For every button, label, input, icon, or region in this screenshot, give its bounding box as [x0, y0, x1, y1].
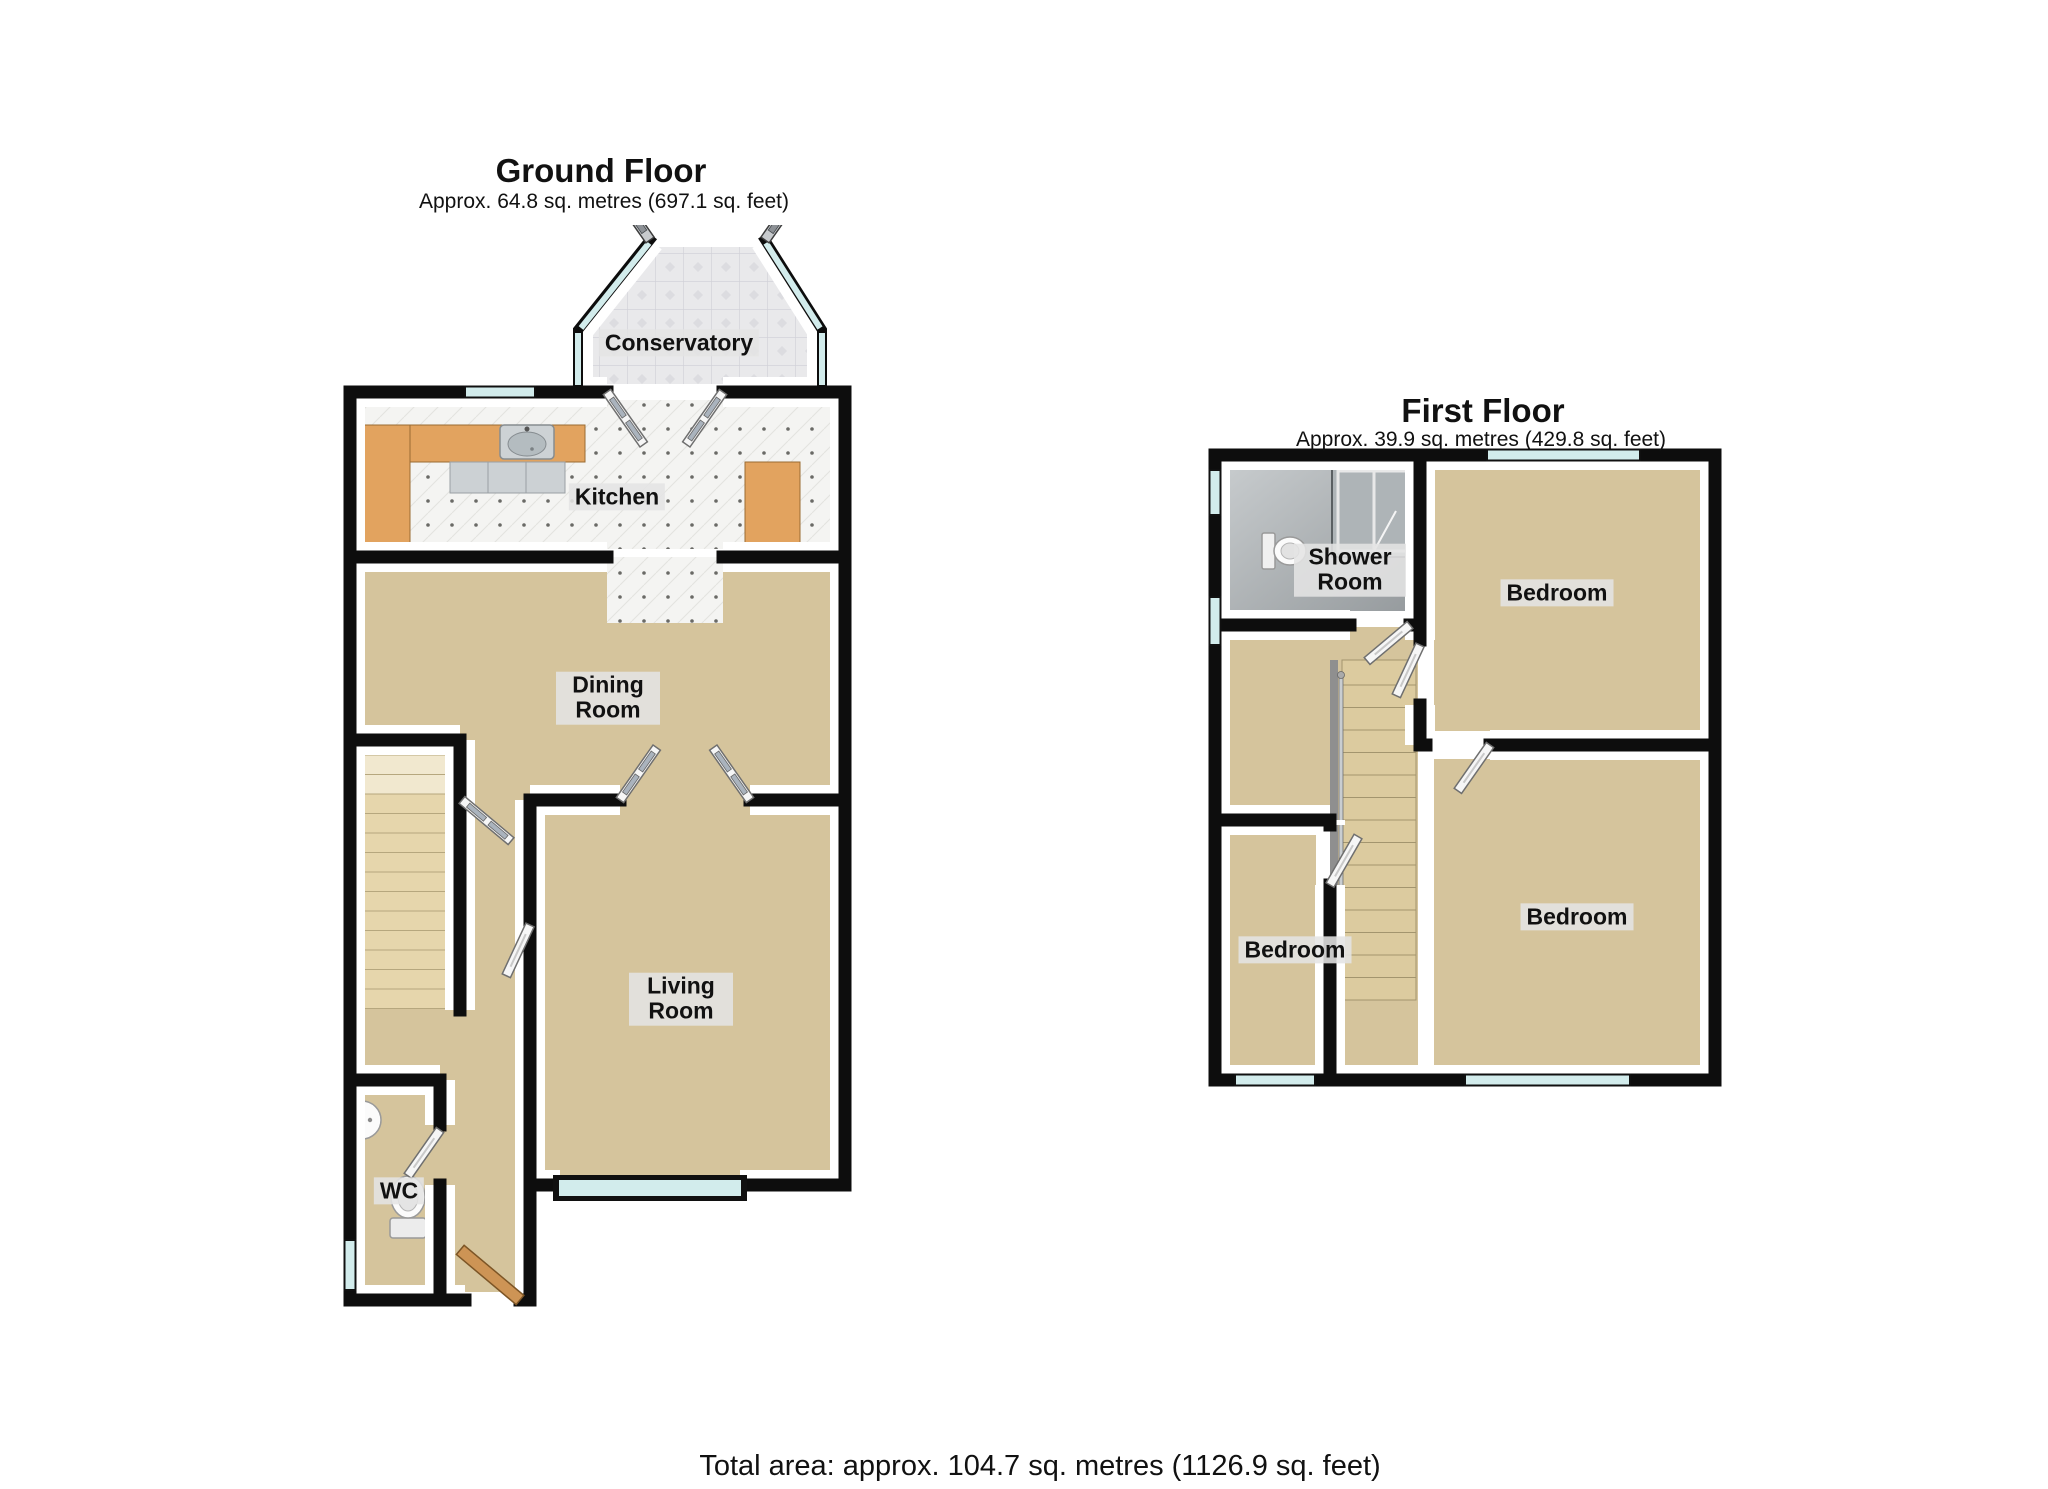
floorplan-page: Ground Floor Approx. 64.8 sq. metres (69…: [0, 0, 2048, 1489]
room-label-kitchen: Kitchen: [569, 483, 665, 510]
bay-window: [553, 1175, 747, 1201]
kitchen-cabinets: [450, 462, 565, 493]
bedroom-bottom-right-window: [1465, 1075, 1630, 1086]
room-label-shower-room: Shower Room: [1294, 544, 1406, 597]
room-label-dining-room: Dining Room: [556, 672, 660, 725]
kitchen-counter-top: [410, 425, 585, 462]
kitchen-sink-icon: [500, 425, 554, 459]
kitchen-window: [465, 387, 535, 398]
conservatory-exterior-door-right: [761, 225, 809, 243]
room-label-conservatory: Conservatory: [599, 329, 759, 356]
room-label-wc: WC: [374, 1177, 424, 1204]
conservatory-exterior-door-left: [606, 225, 654, 243]
first-floor-plan: [1200, 445, 1730, 1105]
room-label-bedroom-bottom-left: Bedroom: [1239, 936, 1352, 963]
total-area-text: Total area: approx. 104.7 sq. metres (11…: [699, 1450, 1380, 1483]
kitchen-counter-right: [745, 462, 800, 555]
wc-window: [345, 1240, 356, 1290]
room-label-bedroom-bottom-right: Bedroom: [1521, 903, 1634, 930]
kitchen-floor-tongue: [607, 557, 723, 623]
ground-floor-title: Ground Floor: [496, 152, 707, 190]
first-floor-title: First Floor: [1401, 392, 1564, 430]
bedroom-bottom-left-window: [1235, 1075, 1315, 1086]
first-floor-subtitle: Approx. 39.9 sq. metres (429.8 sq. feet): [1296, 428, 1666, 452]
ground-staircase: [356, 755, 454, 1009]
room-label-bedroom-top: Bedroom: [1501, 579, 1614, 606]
kitchen-counter-left: [360, 425, 410, 555]
shower-room-window-upper: [1210, 470, 1221, 515]
ground-floor-subtitle: Approx. 64.8 sq. metres (697.1 sq. feet): [419, 190, 789, 214]
shower-room-window-lower: [1210, 597, 1221, 645]
room-label-living-room: Living Room: [629, 973, 733, 1026]
